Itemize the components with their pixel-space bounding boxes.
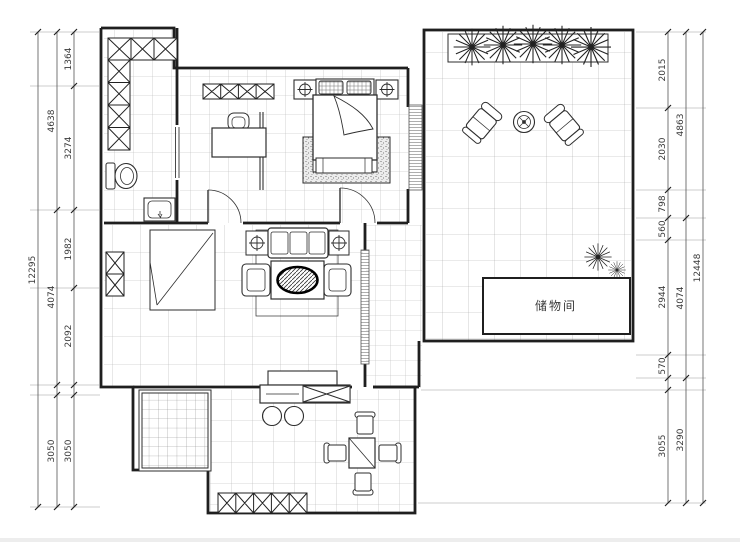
dining-chair bbox=[379, 443, 401, 463]
storage-room-label: 储物间 bbox=[535, 298, 577, 313]
oval-rug bbox=[278, 267, 318, 293]
floor-mattress bbox=[150, 230, 215, 310]
page-edge bbox=[0, 538, 740, 542]
dimension-label: 3050 bbox=[47, 439, 57, 462]
window-strip bbox=[409, 105, 422, 190]
dimension-label: 1982 bbox=[64, 238, 74, 261]
dimension-label: 2030 bbox=[658, 137, 668, 160]
dimension-label: 4074 bbox=[47, 285, 57, 308]
bed-bench bbox=[316, 158, 372, 173]
dimension-label: 570 bbox=[658, 357, 668, 374]
window-strip bbox=[361, 250, 369, 364]
dimension-label: 12295 bbox=[28, 256, 38, 285]
dimension-label: 2092 bbox=[64, 325, 74, 348]
dimension-label: 2944 bbox=[658, 285, 668, 308]
round-tea-table bbox=[514, 112, 535, 133]
dimension-label: 3290 bbox=[676, 428, 686, 451]
dimension-label: 3274 bbox=[64, 136, 74, 159]
dining-chair bbox=[324, 443, 346, 463]
pillow bbox=[319, 81, 343, 94]
dimension-label: 3055 bbox=[658, 435, 668, 458]
dimension-label: 4074 bbox=[676, 286, 686, 309]
dining-chair bbox=[355, 412, 375, 434]
storage-room: 储物间 bbox=[483, 278, 630, 334]
dimension-label: 798 bbox=[658, 195, 668, 212]
dimension-label: 2015 bbox=[658, 59, 668, 82]
bottom-x-cabinet bbox=[218, 493, 307, 513]
dining-chair bbox=[353, 473, 373, 495]
dimensions-left: 1364 3274 1982 2092 3050 4638 4074 3050 … bbox=[28, 29, 100, 510]
pillow bbox=[347, 81, 371, 94]
passage-tiles bbox=[366, 225, 422, 388]
floor-plan-canvas: 储物间 1364 3274 1982 2092 3050 4638 4074 3… bbox=[0, 0, 740, 542]
living-x-cabinet bbox=[106, 252, 124, 296]
toilet bbox=[106, 163, 137, 189]
dimension-label: 1364 bbox=[64, 47, 74, 70]
dimension-label: 4863 bbox=[676, 114, 686, 137]
dimension-label: 560 bbox=[658, 220, 668, 237]
dimension-label: 4638 bbox=[47, 109, 57, 132]
tv-cabinet bbox=[260, 371, 350, 403]
floor-plan-screenshot: 储物间 1364 3274 1982 2092 3050 4638 4074 3… bbox=[0, 0, 740, 542]
wash-basin bbox=[144, 198, 175, 221]
dimension-label: 12448 bbox=[693, 253, 703, 282]
bedroom-top-cabinet bbox=[203, 84, 274, 99]
dimension-label: 3050 bbox=[64, 439, 74, 462]
kitchen-floor-mat bbox=[139, 390, 211, 471]
